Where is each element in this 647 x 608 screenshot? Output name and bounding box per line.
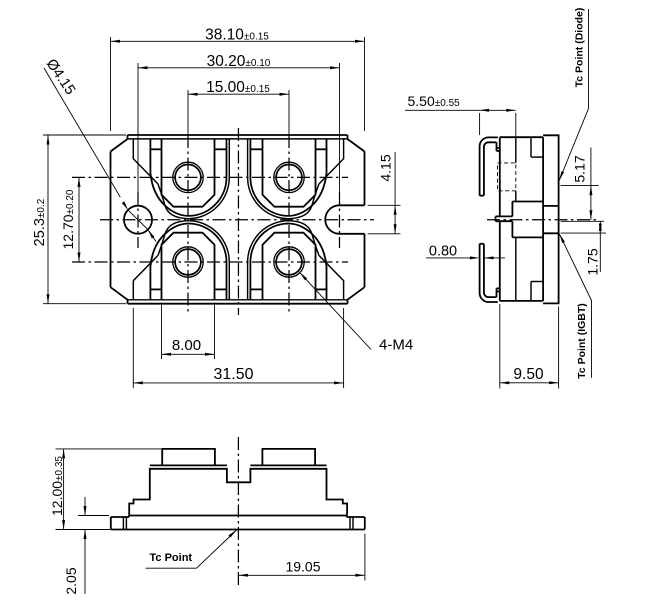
svg-text:Tc Point (Diode): Tc Point (Diode) (574, 8, 586, 88)
svg-text:4.15: 4.15 (378, 154, 394, 181)
svg-text:5.17: 5.17 (572, 155, 588, 182)
svg-text:4-M4: 4-M4 (379, 337, 413, 354)
svg-text:19.05: 19.05 (285, 558, 320, 574)
svg-text:9.50: 9.50 (513, 366, 544, 383)
svg-text:0.80: 0.80 (429, 244, 457, 260)
svg-text:Tc Point: Tc Point (150, 552, 193, 564)
svg-text:2.05: 2.05 (63, 567, 79, 594)
svg-text:1.75: 1.75 (585, 248, 601, 275)
svg-text:31.50: 31.50 (213, 366, 253, 383)
svg-text:8.00: 8.00 (172, 337, 201, 354)
svg-text:Tc Point (IGBT): Tc Point (IGBT) (576, 303, 588, 379)
